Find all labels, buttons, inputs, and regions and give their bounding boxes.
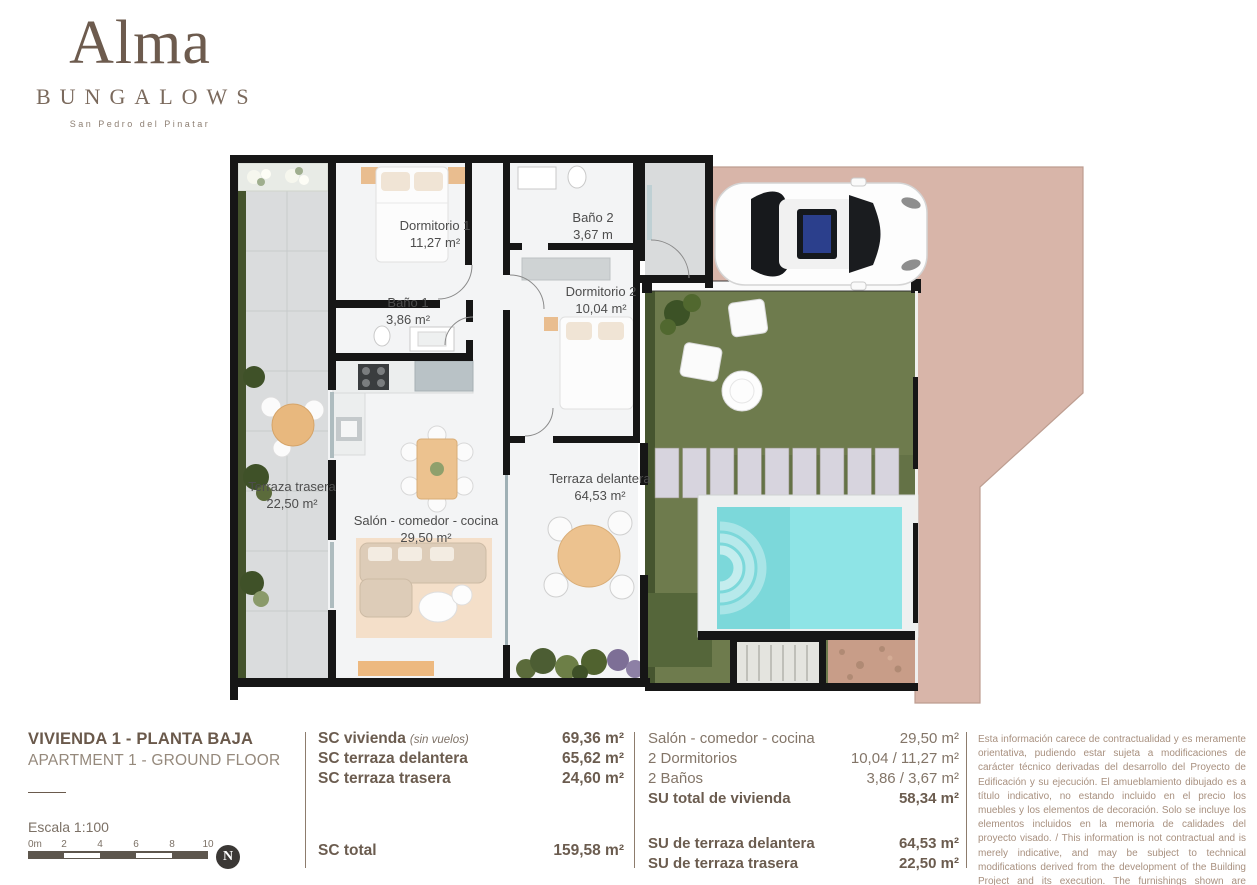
plan-title-en: APARTMENT 1 - GROUND FLOOR <box>28 752 288 770</box>
table-row: SU de terraza delantera 64,53 m² <box>648 835 959 855</box>
car <box>715 178 927 290</box>
sc-total-row: SC total 159,58 m² <box>318 842 624 862</box>
room-label-dormitorio-2: Dormitorio 2 10,04 m² <box>566 284 637 318</box>
table-row: 2 Baños 3,86 / 3,67 m² <box>648 770 959 790</box>
title-dash <box>28 792 66 793</box>
room-label-terraza-delantera: Terraza delantera 64,53 m² <box>549 471 650 505</box>
su-total-row: SU total de vivienda 58,34 m² <box>648 790 959 810</box>
brand-subtitle: BUNGALOWS <box>36 84 250 110</box>
brochure-page: Alma BUNGALOWS San Pedro del Pinatar <box>0 0 1257 885</box>
north-compass-icon: N <box>216 845 240 869</box>
scale-bar: 0m 2 4 6 8 10 N <box>28 839 234 861</box>
table-row: 2 Dormitorios 10,04 / 11,27 m² <box>648 750 959 770</box>
legal-disclaimer: Esta información carece de contractualid… <box>978 733 1246 885</box>
info-panel: VIVIENDA 1 - PLANTA BAJA APARTMENT 1 - G… <box>0 718 1257 885</box>
room-label-salon: Salón - comedor - cocina 29,50 m² <box>354 513 499 547</box>
su-areas-table: Salón - comedor - cocina 29,50 m² 2 Dorm… <box>648 730 959 875</box>
scale-bar-segments <box>28 851 208 859</box>
plan-identity: VIVIENDA 1 - PLANTA BAJA APARTMENT 1 - G… <box>28 730 288 861</box>
brand-name: Alma <box>30 12 250 74</box>
room-label-dormitorio-1: Dormitorio 1 11,27 m² <box>400 218 471 252</box>
room-label-bano-1: Baño 1 3,86 m² <box>386 295 430 329</box>
room-label-terraza-trasera: Terraza trasera 22,50 m² <box>248 479 335 513</box>
brand-location: San Pedro del Pinatar <box>30 119 250 129</box>
scale-ticks: 0m 2 4 6 8 10 <box>28 839 209 850</box>
table-row: SU de terraza trasera 22,50 m² <box>648 855 959 875</box>
table-row: Salón - comedor - cocina 29,50 m² <box>648 730 959 750</box>
stepping-stones <box>655 448 899 498</box>
sc-areas-table: SC vivienda(sin vuelos) 69,36 m² SC terr… <box>318 730 624 862</box>
table-row: SC terraza trasera 24,60 m² <box>318 770 624 790</box>
floor-plan: Dormitorio 1 11,27 m² Baño 2 3,67 m Baño… <box>230 155 1105 712</box>
divider-1 <box>305 732 306 868</box>
table-row: SC vivienda(sin vuelos) 69,36 m² <box>318 730 624 750</box>
room-label-bano-2: Baño 2 3,67 m <box>572 210 613 244</box>
floor-plan-graphic <box>230 155 1105 712</box>
divider-3 <box>966 732 967 868</box>
gravel-patch <box>828 640 915 685</box>
plan-title-es: VIVIENDA 1 - PLANTA BAJA <box>28 730 288 749</box>
table-row: SC terraza delantera 65,62 m² <box>318 750 624 770</box>
brand-logo: Alma BUNGALOWS San Pedro del Pinatar <box>30 12 250 129</box>
pool <box>698 495 918 640</box>
bathroom2-fixtures <box>518 166 586 189</box>
scale-label: Escala 1:100 <box>28 819 288 835</box>
exterior-stairs <box>730 637 826 687</box>
divider-2 <box>634 732 635 868</box>
